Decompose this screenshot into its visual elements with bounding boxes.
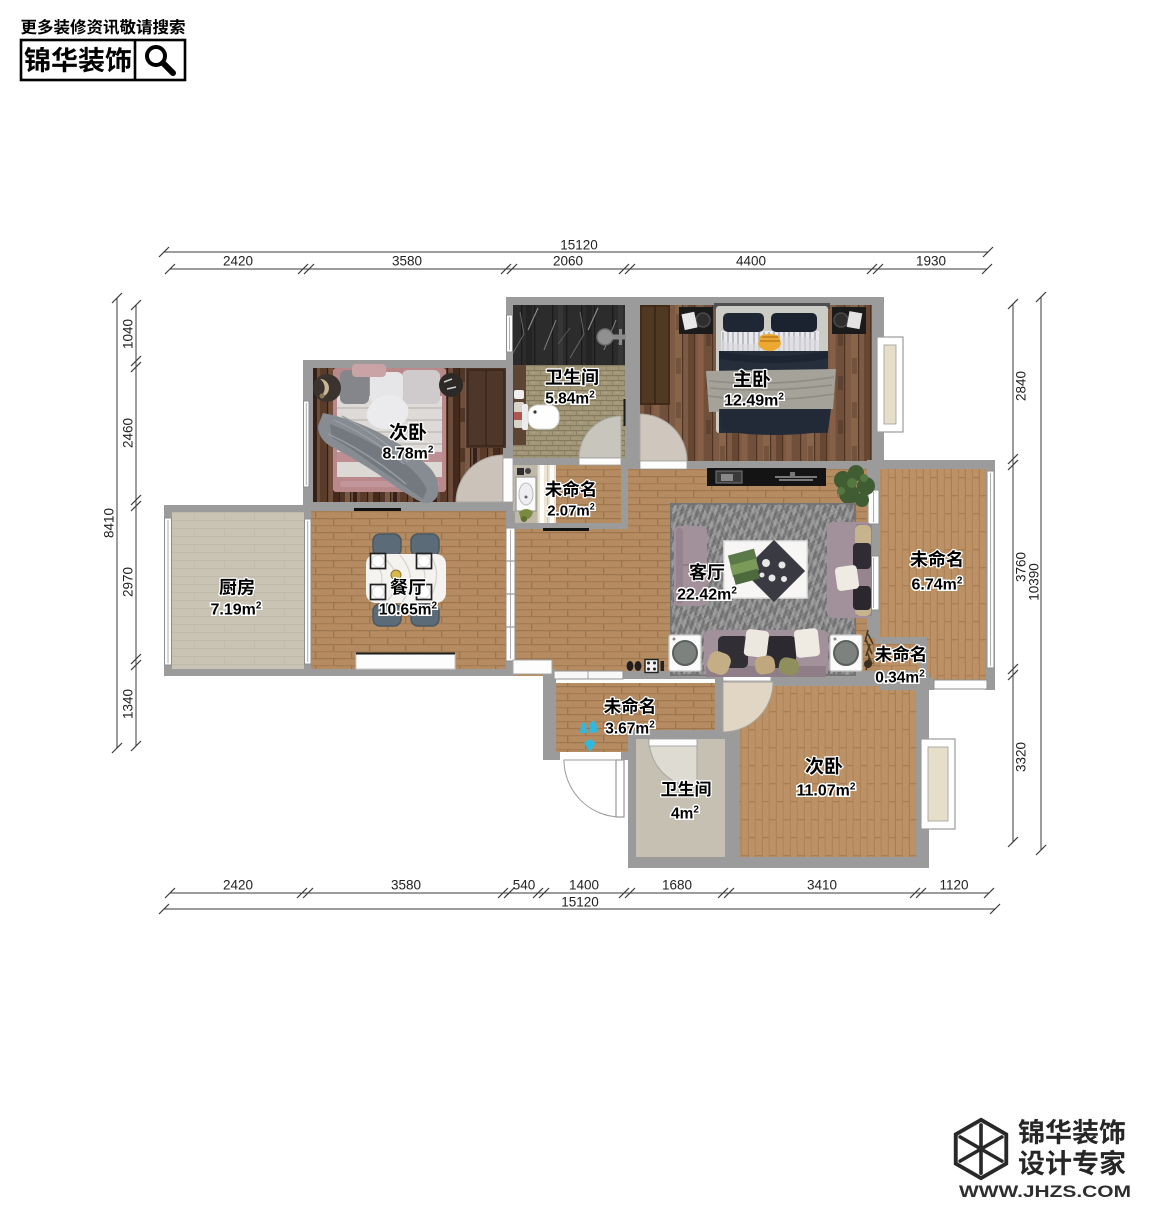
svg-text:2970: 2970 — [121, 567, 136, 597]
svg-text:10390: 10390 — [1027, 563, 1042, 601]
svg-text:2420: 2420 — [223, 254, 253, 269]
svg-text:3580: 3580 — [391, 878, 421, 893]
svg-text:7.19m2: 7.19m2 — [211, 601, 262, 619]
svg-text:11.07m2: 11.07m2 — [797, 782, 856, 800]
svg-text:WWW.JHZS.COM: WWW.JHZS.COM — [959, 1182, 1131, 1201]
svg-text:3320: 3320 — [1014, 742, 1029, 772]
svg-text:1340: 1340 — [121, 689, 136, 719]
svg-text:8.78m2: 8.78m2 — [383, 445, 434, 463]
svg-text:1680: 1680 — [662, 878, 692, 893]
svg-text:10.65m2: 10.65m2 — [379, 601, 438, 619]
svg-text:5.84m2: 5.84m2 — [545, 390, 595, 408]
svg-text:1930: 1930 — [916, 254, 946, 269]
svg-text:1400: 1400 — [569, 878, 599, 893]
svg-text:4400: 4400 — [736, 254, 766, 269]
svg-text:2460: 2460 — [121, 418, 136, 448]
svg-text:8410: 8410 — [102, 508, 117, 538]
svg-text:2.07m2: 2.07m2 — [547, 502, 595, 520]
svg-text:22.42m2: 22.42m2 — [677, 586, 737, 604]
svg-text:15120: 15120 — [561, 895, 599, 910]
svg-text:3.67m2: 3.67m2 — [605, 720, 655, 738]
svg-text:2840: 2840 — [1014, 371, 1029, 401]
svg-text:1120: 1120 — [939, 878, 968, 893]
svg-text:15120: 15120 — [560, 238, 598, 253]
svg-text:6.74m2: 6.74m2 — [912, 576, 963, 594]
svg-text:0.34m2: 0.34m2 — [875, 669, 925, 687]
svg-text:2420: 2420 — [223, 878, 253, 893]
svg-text:3410: 3410 — [807, 878, 837, 893]
svg-text:12.49m2: 12.49m2 — [724, 392, 784, 410]
svg-text:1040: 1040 — [121, 319, 136, 349]
svg-text:2060: 2060 — [553, 254, 583, 269]
svg-text:3580: 3580 — [392, 254, 422, 269]
svg-text:540: 540 — [513, 878, 536, 893]
